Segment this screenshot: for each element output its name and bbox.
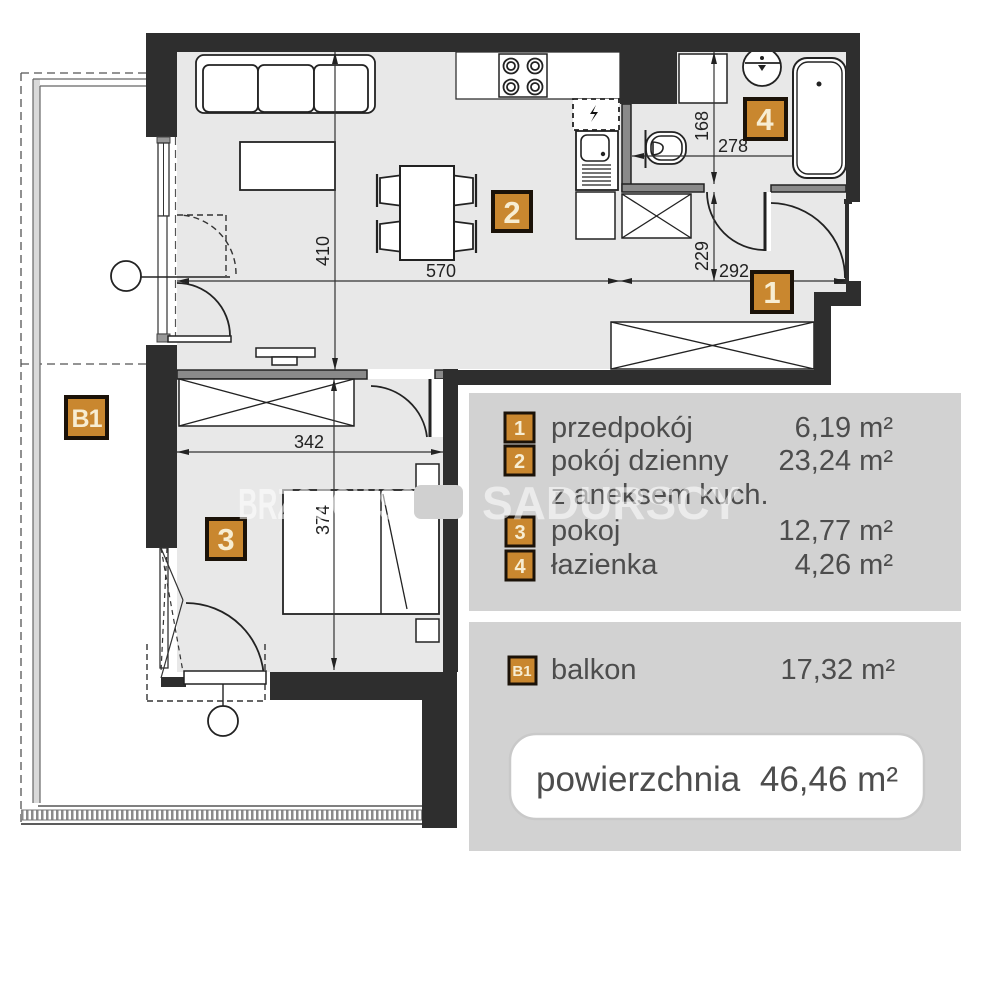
svg-text:B1: B1	[72, 405, 103, 433]
svg-text:292: 292	[719, 261, 749, 281]
svg-text:1: 1	[514, 418, 525, 440]
svg-text:23,24 m²: 23,24 m²	[779, 445, 894, 477]
svg-text:balkon: balkon	[551, 654, 636, 686]
svg-text:pokój dzienny: pokój dzienny	[551, 445, 729, 477]
svg-text:6,19 m²: 6,19 m²	[795, 412, 894, 444]
svg-text:przedpokój: przedpokój	[551, 412, 693, 444]
svg-text:B1: B1	[512, 663, 531, 680]
svg-text:410: 410	[313, 236, 333, 266]
svg-text:229: 229	[692, 241, 712, 271]
svg-text:BRZOZOWSCY: BRZOZOWSCY	[238, 479, 435, 528]
svg-text:570: 570	[426, 261, 456, 281]
svg-text:SADURSCY: SADURSCY	[482, 477, 740, 529]
svg-text:2: 2	[503, 195, 520, 230]
svg-text:17,32 m²: 17,32 m²	[781, 654, 896, 686]
svg-text:łazienka: łazienka	[551, 549, 658, 581]
svg-text:4: 4	[514, 556, 526, 578]
svg-text:powierzchnia: powierzchnia	[536, 760, 741, 799]
svg-text:4: 4	[756, 102, 774, 137]
svg-text:12,77 m²: 12,77 m²	[779, 515, 894, 547]
svg-text:168: 168	[692, 111, 712, 141]
svg-text:4,26 m²: 4,26 m²	[795, 549, 894, 581]
svg-text:342: 342	[294, 432, 324, 452]
svg-text:46,46 m²: 46,46 m²	[760, 760, 898, 799]
svg-text:3: 3	[217, 522, 234, 557]
svg-text:1: 1	[763, 275, 780, 310]
svg-text:2: 2	[514, 451, 525, 473]
